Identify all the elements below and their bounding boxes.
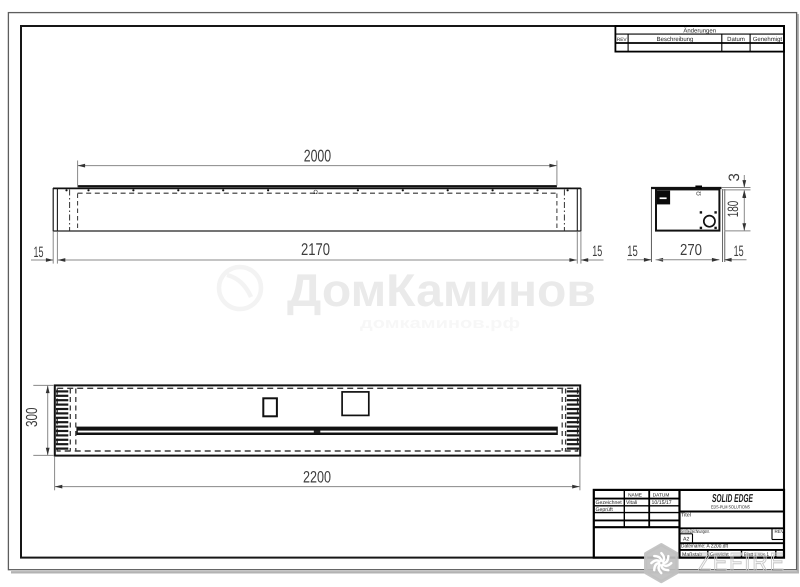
svg-text:EDS-PLM SOLUTIONS: EDS-PLM SOLUTIONS	[711, 504, 750, 509]
svg-text:Vitali: Vitali	[626, 500, 637, 506]
svg-text:Beschreibung: Beschreibung	[657, 36, 694, 43]
svg-text:300: 300	[24, 407, 41, 427]
svg-text:Ω: Ω	[696, 191, 703, 196]
svg-text:Änderungen: Änderungen	[683, 26, 716, 34]
svg-text:DATUM: DATUM	[653, 492, 670, 498]
svg-text:ZEFIRE: ZEFIRE	[698, 547, 786, 577]
svg-text:Titel: Titel	[681, 512, 691, 518]
svg-text:2000: 2000	[304, 147, 332, 166]
svg-text:2170: 2170	[301, 240, 330, 259]
svg-text:Ω: Ω	[313, 189, 318, 196]
svg-text:домкаминов.рф: домкаминов.рф	[360, 315, 520, 332]
svg-text:15: 15	[592, 243, 602, 260]
svg-text:15: 15	[734, 243, 744, 260]
svg-text:Geprüft: Geprüft	[596, 507, 614, 513]
svg-text:Gezeichnet: Gezeichnet	[596, 500, 623, 506]
svg-text:A2: A2	[683, 537, 689, 543]
svg-text:REV: REV	[775, 529, 785, 534]
svg-text:10/15/17: 10/15/17	[652, 500, 672, 506]
svg-text:3: 3	[726, 173, 743, 181]
svg-text:15: 15	[34, 244, 44, 261]
svg-text:270: 270	[680, 242, 702, 259]
svg-text:Genehmigt: Genehmigt	[753, 36, 783, 43]
svg-text:Datum: Datum	[727, 36, 745, 43]
svg-text:2200: 2200	[303, 469, 331, 487]
svg-text:REV: REV	[617, 37, 628, 43]
svg-text:NAME: NAME	[628, 492, 642, 498]
svg-text:ДомКаминов: ДомКаминов	[287, 264, 596, 316]
svg-text:180: 180	[725, 201, 742, 218]
svg-text:15: 15	[627, 243, 638, 260]
